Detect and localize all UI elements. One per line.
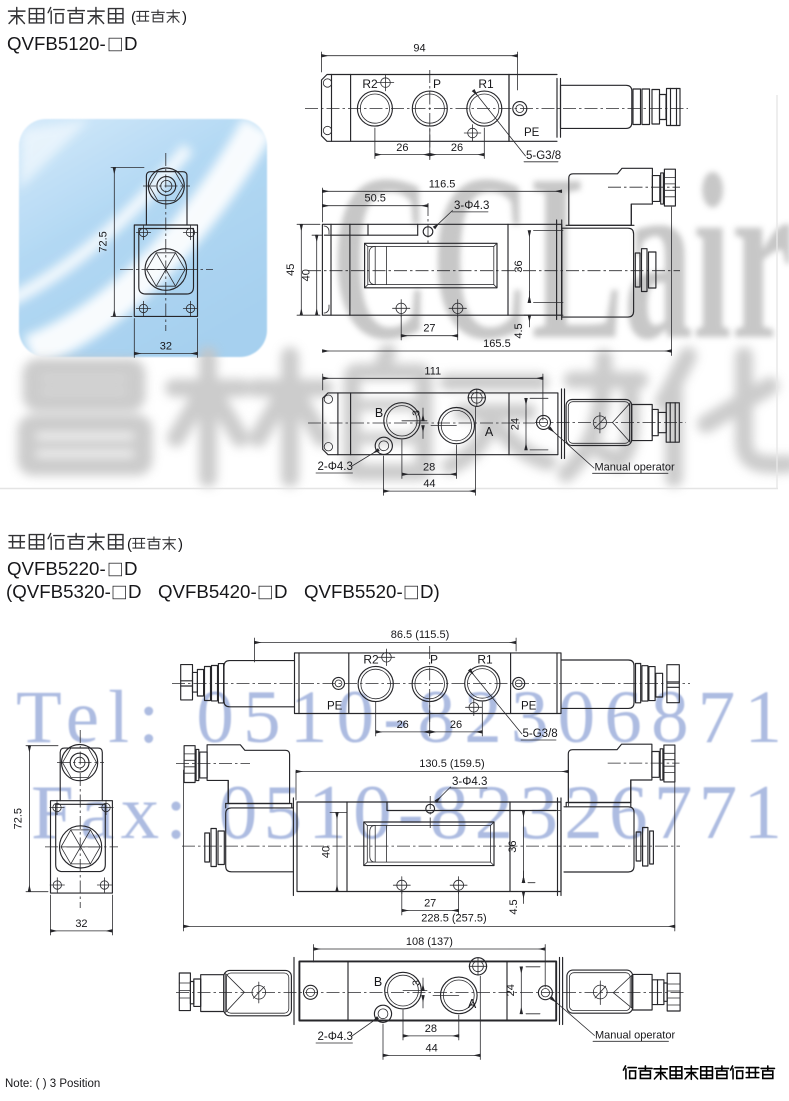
- svg-text:40: 40: [301, 269, 313, 281]
- svg-text:D: D: [124, 558, 138, 579]
- svg-text:R2: R2: [363, 653, 379, 667]
- svg-text:36: 36: [513, 260, 525, 272]
- svg-text:B: B: [375, 406, 383, 420]
- svg-text:26: 26: [396, 142, 408, 154]
- svg-text:D: D: [124, 33, 138, 54]
- svg-text:108 (137): 108 (137): [406, 936, 453, 948]
- svg-text:32: 32: [160, 340, 172, 352]
- svg-text:A: A: [468, 997, 477, 1011]
- svg-text:44: 44: [423, 478, 435, 490]
- svg-text:2-Φ4.3: 2-Φ4.3: [318, 461, 353, 473]
- svg-text:2-Φ4.3: 2-Φ4.3: [318, 1031, 353, 1043]
- svg-text:(: (: [131, 9, 136, 26]
- svg-text:): ): [182, 9, 187, 26]
- svg-text:(: (: [127, 536, 132, 553]
- svg-text:3-Φ4.3: 3-Φ4.3: [452, 776, 487, 788]
- svg-text:D: D: [128, 581, 142, 602]
- svg-text:72.5: 72.5: [98, 231, 110, 252]
- svg-text:165.5: 165.5: [483, 338, 511, 350]
- svg-text:): ): [178, 536, 183, 553]
- svg-text:D: D: [274, 581, 288, 602]
- svg-text:26: 26: [451, 142, 463, 154]
- svg-text:P: P: [430, 653, 438, 667]
- svg-text:P: P: [433, 77, 441, 91]
- svg-text:Manual operator: Manual operator: [595, 1029, 675, 1041]
- svg-text:5-G3/8: 5-G3/8: [526, 150, 561, 162]
- svg-text:45: 45: [285, 264, 297, 276]
- svg-text:4.5: 4.5: [513, 323, 525, 338]
- svg-text:PE: PE: [524, 127, 540, 139]
- svg-text:72.5: 72.5: [13, 808, 25, 829]
- svg-text:4.5: 4.5: [508, 899, 520, 914]
- svg-text:QVFB5220-: QVFB5220-: [7, 558, 106, 579]
- svg-text:Manual operator: Manual operator: [595, 461, 675, 473]
- svg-text:QVFB5420-: QVFB5420-: [158, 581, 257, 602]
- svg-text:86.5 (115.5): 86.5 (115.5): [391, 629, 450, 641]
- svg-text:28: 28: [423, 461, 435, 473]
- svg-text:50.5: 50.5: [364, 193, 385, 205]
- svg-text:QVFB5120-: QVFB5120-: [7, 33, 106, 54]
- svg-text:B: B: [374, 975, 382, 989]
- svg-text:(QVFB5320-: (QVFB5320-: [6, 581, 111, 602]
- svg-text:24: 24: [510, 418, 522, 430]
- svg-text:27: 27: [424, 898, 436, 910]
- svg-text:A: A: [485, 425, 494, 439]
- svg-text:R2: R2: [362, 77, 378, 91]
- svg-text:94: 94: [413, 43, 425, 55]
- svg-text:44: 44: [426, 1042, 438, 1054]
- svg-text:CCLair: CCLair: [331, 126, 789, 389]
- svg-text:PE: PE: [521, 701, 537, 713]
- svg-text:28: 28: [425, 1023, 437, 1035]
- svg-text:3: 3: [411, 410, 423, 416]
- svg-text:27: 27: [423, 323, 435, 335]
- svg-text:228.5 (257.5): 228.5 (257.5): [421, 912, 486, 924]
- svg-text:D): D): [420, 581, 440, 602]
- svg-text:111: 111: [424, 365, 441, 377]
- svg-text:130.5 (159.5): 130.5 (159.5): [419, 758, 484, 770]
- svg-text:24: 24: [505, 984, 517, 996]
- svg-text:5-G3/8: 5-G3/8: [523, 728, 558, 740]
- svg-text:R1: R1: [478, 77, 494, 91]
- svg-text:32: 32: [75, 918, 87, 930]
- svg-text:QVFB5520-: QVFB5520-: [304, 581, 403, 602]
- svg-text:40: 40: [321, 846, 333, 858]
- svg-text:116.5: 116.5: [429, 178, 456, 190]
- svg-text:26: 26: [450, 719, 462, 731]
- svg-text:3-Φ4.3: 3-Φ4.3: [454, 200, 489, 212]
- svg-text:Note: ( ) 3 Position: Note: ( ) 3 Position: [5, 1078, 100, 1090]
- svg-text:3: 3: [411, 980, 423, 986]
- svg-text:R1: R1: [477, 653, 493, 667]
- svg-text:PE: PE: [327, 701, 343, 713]
- svg-text:26: 26: [397, 719, 409, 731]
- svg-text:36: 36: [507, 841, 519, 853]
